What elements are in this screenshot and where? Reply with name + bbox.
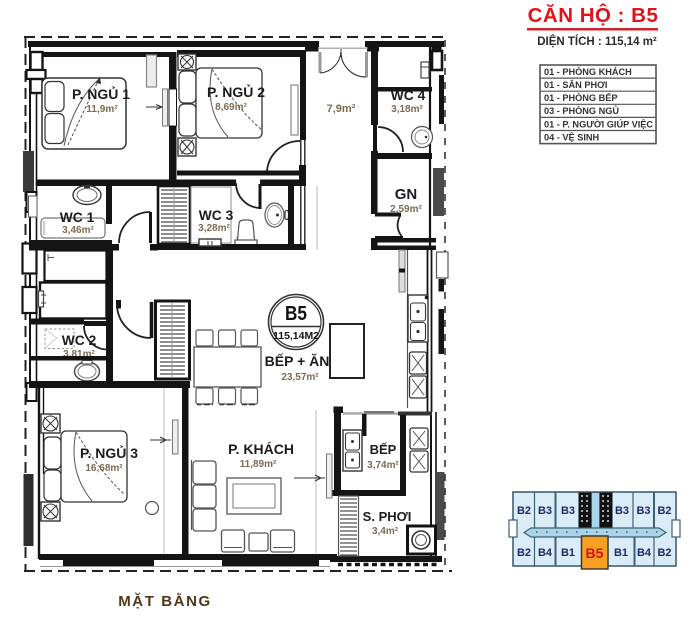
- svg-text:16,68m²: 16,68m²: [85, 463, 123, 474]
- svg-text:BẾP: BẾP: [370, 442, 397, 457]
- svg-text:B1: B1: [614, 547, 628, 559]
- svg-text:01 - PHÒNG KHÁCH: 01 - PHÒNG KHÁCH: [544, 66, 632, 77]
- svg-text:WC 4: WC 4: [391, 88, 426, 103]
- svg-text:3,46m²: 3,46m²: [62, 225, 94, 236]
- svg-text:B3: B3: [636, 505, 650, 517]
- svg-text:B2: B2: [657, 547, 671, 559]
- svg-text:GN: GN: [395, 186, 418, 203]
- svg-text:B3: B3: [615, 505, 629, 517]
- svg-text:01 - SÂN PHƠI: 01 - SÂN PHƠI: [544, 79, 608, 90]
- svg-text:B3: B3: [561, 505, 575, 517]
- svg-text:3,74m²: 3,74m²: [367, 460, 399, 471]
- svg-text:B3: B3: [538, 505, 552, 517]
- svg-text:01 - P. NGƯỜI GIÚP VIỆC: 01 - P. NGƯỜI GIÚP VIỆC: [544, 118, 653, 129]
- svg-text:B2: B2: [517, 505, 531, 517]
- svg-text:P. NGỦ 2: P. NGỦ 2: [207, 83, 265, 100]
- svg-text:BẾP + ĂN: BẾP + ĂN: [265, 353, 330, 369]
- svg-text:03 - PHÒNG NGỦ: 03 - PHÒNG NGỦ: [544, 105, 619, 116]
- svg-text:WC 2: WC 2: [62, 333, 97, 348]
- svg-text:B5: B5: [586, 545, 604, 561]
- svg-text:B2: B2: [517, 547, 531, 559]
- svg-text:7,9m²: 7,9m²: [327, 103, 356, 115]
- svg-text:11,89m²: 11,89m²: [240, 459, 277, 470]
- svg-text:WC 3: WC 3: [199, 208, 234, 223]
- svg-text:B2: B2: [657, 505, 671, 517]
- svg-text:23,57m²: 23,57m²: [281, 372, 319, 383]
- svg-text:B5: B5: [285, 303, 307, 325]
- svg-text:S. PHƠI: S. PHƠI: [363, 509, 412, 524]
- svg-text:3,18m²: 3,18m²: [391, 104, 423, 115]
- svg-text:DIỆN TÍCH : 115,14 m²: DIỆN TÍCH : 115,14 m²: [537, 35, 657, 48]
- svg-text:11,9m²: 11,9m²: [86, 104, 118, 115]
- svg-text:CĂN HỘ : B5: CĂN HỘ : B5: [528, 3, 659, 27]
- svg-text:B4: B4: [538, 547, 553, 559]
- svg-text:B1: B1: [561, 547, 575, 559]
- svg-text:3,28m²: 3,28m²: [198, 223, 230, 234]
- svg-text:P. NGỦ 1: P. NGỦ 1: [72, 85, 130, 102]
- svg-text:8,69m²: 8,69m²: [215, 102, 247, 113]
- svg-text:WC 1: WC 1: [60, 210, 95, 225]
- svg-text:P. KHÁCH: P. KHÁCH: [228, 441, 294, 457]
- svg-text:B4: B4: [637, 547, 652, 559]
- svg-text:04 - VỆ SINH: 04 - VỆ SINH: [544, 131, 600, 142]
- svg-text:P. NGỦ 3: P. NGỦ 3: [80, 444, 138, 461]
- svg-text:01 - PHÒNG BẾP: 01 - PHÒNG BẾP: [544, 92, 618, 103]
- svg-text:MẶT BẰNG: MẶT BẰNG: [118, 592, 212, 610]
- svg-text:3,4m²: 3,4m²: [372, 526, 399, 537]
- svg-text:115,14M2: 115,14M2: [273, 330, 319, 342]
